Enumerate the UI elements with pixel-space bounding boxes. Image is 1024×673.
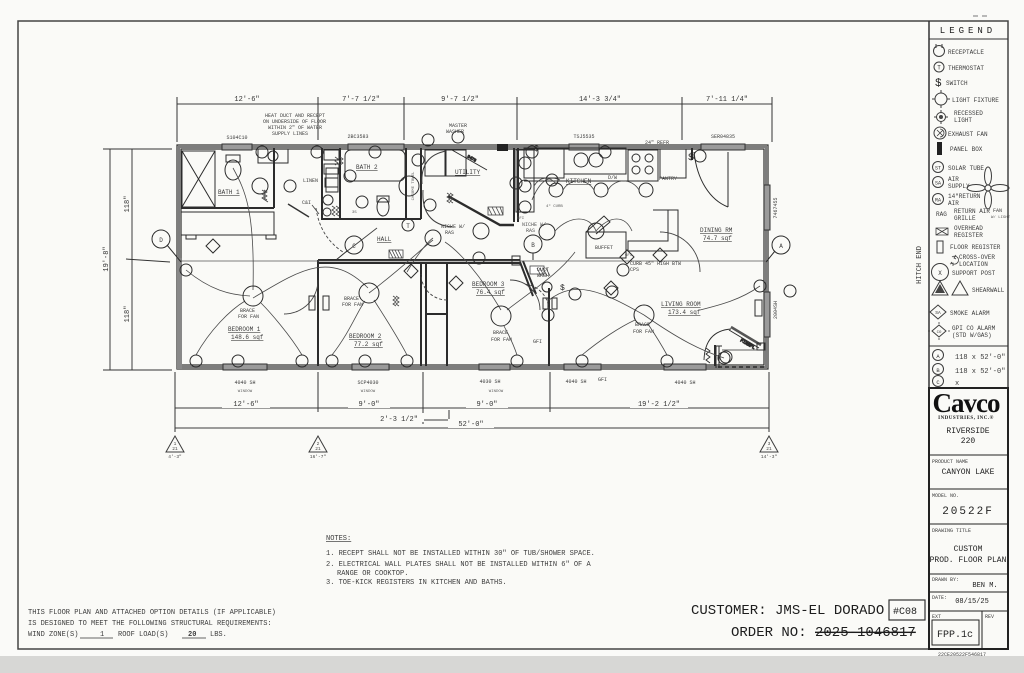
svg-text:NOTES:: NOTES: [326,535,351,543]
svg-text:RAS: RAS [526,228,535,234]
svg-text:D: D [159,237,163,244]
svg-text:173.4 sqf: 173.4 sqf [668,309,701,316]
svg-text:THERMOSTAT: THERMOSTAT [948,65,984,72]
svg-text:1. RECEPT SHALL NOT BE INSTALL: 1. RECEPT SHALL NOT BE INSTALLED WITHIN … [326,550,595,558]
svg-text:118": 118" [124,306,132,323]
svg-text:SCP4030: SCP4030 [357,380,378,386]
svg-text:HALL: HALL [377,236,392,243]
svg-text:GFI: GFI [533,339,542,345]
svg-text:UTILITY: UTILITY [455,169,481,176]
svg-text:20522F: 20522F [942,506,994,518]
svg-text:118 x 52'-0": 118 x 52'-0" [955,354,1005,362]
svg-text:DINING RM: DINING RM [700,227,733,234]
svg-text:118 x 52'-0": 118 x 52'-0" [955,368,1005,376]
svg-text:9'-0": 9'-0" [476,401,497,409]
svg-text:FLOOR REGISTER: FLOOR REGISTER [950,244,1001,251]
svg-text:T: T [406,223,410,230]
svg-text:AIR: AIR [948,176,959,183]
svg-text:BEDROOM 1: BEDROOM 1 [228,326,261,333]
svg-text:B: B [531,242,535,249]
svg-text:HITCH END: HITCH END [916,246,924,284]
svg-text:7467455: 7467455 [773,197,779,218]
svg-text:$: $ [560,284,565,293]
svg-text:118": 118" [124,196,132,213]
svg-text:MODEL NO.: MODEL NO. [932,493,959,499]
svg-text:RETURN AIR: RETURN AIR [954,208,990,215]
svg-text:DATE:: DATE: [932,595,947,601]
svg-text:ORDER NO:: ORDER NO: [731,625,807,641]
svg-text:21: 21 [172,446,178,452]
svg-text:BATH 2: BATH 2 [356,164,378,171]
svg-text:GFI: GFI [517,217,524,221]
svg-text:SA: SA [935,181,941,187]
svg-text:220: 220 [961,437,976,446]
svg-text:CANYON LAKE: CANYON LAKE [942,468,995,477]
svg-text:X: X [938,270,942,277]
svg-text:PRODUCT NAME: PRODUCT NAME [932,459,968,465]
svg-text:PANEL BOX: PANEL BOX [950,146,983,153]
svg-text:GRILLE: GRILLE [954,215,976,222]
svg-text:$: $ [688,152,694,164]
svg-text:PROD. FLOOR PLAN: PROD. FLOOR PLAN [930,556,1007,565]
svg-text:LOCATION: LOCATION [959,261,988,268]
svg-text:SOLAR TUBE: SOLAR TUBE [948,165,984,172]
svg-text:FOR FAN: FOR FAN [633,329,654,335]
svg-text:CROSS-OVER: CROSS-OVER [959,254,995,261]
svg-text:2004SH: 2004SH [773,301,779,319]
svg-text:24" REFR: 24" REFR [645,140,669,146]
svg-text:SUPPORT POST: SUPPORT POST [952,270,996,277]
svg-text:SWITCH: SWITCH [946,80,968,87]
svg-text:12'-6": 12'-6" [234,96,259,104]
svg-text:T: T [937,65,941,72]
svg-text:21: 21 [315,446,321,452]
svg-text:WASHER: WASHER [446,129,464,135]
svg-text:$: $ [935,78,942,90]
svg-text:WINDOW: WINDOW [361,390,376,394]
svg-text:19'-2 1/2": 19'-2 1/2" [638,401,680,409]
svg-text:4" CURB: 4" CURB [546,204,563,209]
svg-text:PANTRY: PANTRY [659,176,677,182]
svg-text:(STD W/GAS): (STD W/GAS) [952,332,992,339]
svg-text:EXT: EXT [932,614,941,620]
svg-text:FOR FAN: FOR FAN [238,314,259,320]
svg-text:BATH 1: BATH 1 [218,189,240,196]
svg-text:LEGEND: LEGEND [940,26,996,36]
svg-text:C: C [352,243,356,250]
svg-text:FAN: FAN [993,208,1002,214]
svg-text:DRAWING TITLE: DRAWING TITLE [932,528,971,534]
svg-text:BEDROOM 2: BEDROOM 2 [349,333,382,340]
svg-text:LINEN: LINEN [303,178,318,184]
svg-text:BRACE: BRACE [493,330,508,336]
svg-text:WASH: WASH [537,273,549,279]
svg-text:08/15/25: 08/15/25 [955,598,989,606]
svg-text:76.4 sqf: 76.4 sqf [476,289,505,296]
svg-text:SHEARWALL: SHEARWALL [972,287,1005,294]
svg-text:2'-3 1/2": 2'-3 1/2" [380,416,418,424]
svg-text:19'-8": 19'-8" [103,246,111,271]
svg-text:WINDOW: WINDOW [238,390,253,394]
svg-text:C&I: C&I [302,200,311,206]
svg-text:#C08: #C08 [893,607,917,618]
svg-text:77.2 sqf: 77.2 sqf [354,341,383,348]
svg-text:LIGHT FIXTURE: LIGHT FIXTURE [952,97,999,104]
svg-text:2BC3583: 2BC3583 [347,134,368,140]
svg-text:A: A [779,243,783,250]
svg-text:CO: CO [937,331,942,335]
svg-text:INDUSTRIES, INC.®: INDUSTRIES, INC.® [938,415,994,421]
svg-text:IS DESIGNED TO MEET THE FOLLOW: IS DESIGNED TO MEET THE FOLLOWING STRUCT… [28,620,272,628]
svg-text:9'-0": 9'-0" [358,401,379,409]
svg-text:GFI: GFI [598,377,607,383]
svg-text:4040 SH: 4040 SH [565,379,586,385]
svg-text:3. TOE-KICK REGISTERS IN KITCH: 3. TOE-KICK REGISTERS IN KITCHEN AND BAT… [326,579,507,587]
svg-text:KITCHEN: KITCHEN [566,178,592,185]
svg-text:FPP.1c: FPP.1c [937,630,973,641]
svg-text:14'-3": 14'-3" [761,454,778,460]
svg-text:RAS: RAS [445,230,454,236]
svg-text:D/W: D/W [608,175,617,181]
svg-text:REGISTER: REGISTER [954,232,983,239]
svg-text:74.7 sqf: 74.7 sqf [703,235,732,242]
svg-text:AIR: AIR [948,200,959,207]
svg-text:BRACE: BRACE [635,322,650,328]
svg-text:14'-3 3/4": 14'-3 3/4" [579,96,621,104]
svg-text:SUPPLY: SUPPLY [948,183,970,190]
svg-text:35: 35 [352,211,357,215]
svg-text:TSJ5535: TSJ5535 [573,134,594,140]
svg-text:MASTER: MASTER [449,123,467,129]
svg-text:FOR FAN: FOR FAN [491,337,512,343]
svg-text:RANGE OR COOKTOP.: RANGE OR COOKTOP. [337,570,408,578]
svg-text:FOR FAN: FOR FAN [342,302,363,308]
svg-text:LBS.: LBS. [210,631,227,639]
svg-text:LIVING ROOM: LIVING ROOM [661,301,701,308]
svg-text:7'-7 1/2": 7'-7 1/2" [342,96,380,104]
svg-text:Cavco: Cavco [933,388,1000,418]
svg-text:CUSTOMER: JMS-EL DORADO: CUSTOMER: JMS-EL DORADO [691,603,884,619]
svg-text:THIS FLOOR PLAN AND ATTACHED O: THIS FLOOR PLAN AND ATTACHED OPTION DETA… [28,609,276,617]
svg-text:12'-6": 12'-6" [233,401,258,409]
svg-text:LIGHT: LIGHT [954,117,972,124]
svg-text:RECEPTACLE: RECEPTACLE [948,49,984,56]
svg-text:RA: RA [935,198,941,204]
svg-text:2. ELECTRICAL WALL PLATES SHAL: 2. ELECTRICAL WALL PLATES SHALL NOT BE I… [326,561,591,569]
svg-text:16'-7": 16'-7" [310,454,327,460]
svg-text:GPI CO ALARM: GPI CO ALARM [952,325,996,332]
svg-text:4040 SH: 4040 SH [234,380,255,386]
svg-text:BEN M.: BEN M. [972,582,997,590]
svg-text:2025-1046817: 2025-1046817 [815,625,916,641]
svg-text:CUSTOM: CUSTOM [954,545,983,554]
svg-text:4040 SH: 4040 SH [674,380,695,386]
svg-text:REV: REV [985,614,994,620]
svg-text:SUPPLY LINES: SUPPLY LINES [272,131,308,137]
svg-text:DRAWN BY:: DRAWN BY: [932,577,959,583]
svg-text:WIND ZONE(S): WIND ZONE(S) [28,631,78,639]
svg-text:CPS: CPS [630,267,639,273]
svg-text:RIVERSIDE: RIVERSIDE [946,427,989,436]
svg-text:CHROME TOWEL: CHROME TOWEL [412,171,416,200]
svg-text:ROOF LOAD(S): ROOF LOAD(S) [118,631,168,639]
svg-text:SMOKE ALARM: SMOKE ALARM [950,310,990,317]
svg-text:7'-11 1/4": 7'-11 1/4" [706,96,748,104]
svg-text:W/ LIGHT: W/ LIGHT [991,215,1011,220]
svg-text:$: $ [534,145,539,154]
svg-text:x: x [955,380,959,388]
svg-text:52'-0": 52'-0" [458,421,483,429]
svg-text:WINDOW: WINDOW [489,390,504,394]
svg-text:4030 SH: 4030 SH [479,379,500,385]
svg-text:RECESSED: RECESSED [954,110,983,117]
svg-text:OVERHEAD: OVERHEAD [954,225,983,232]
svg-text:ST: ST [935,166,941,172]
svg-text:BUFFET: BUFFET [595,245,613,251]
svg-text:148.6 sqf: 148.6 sqf [231,334,264,341]
svg-text:21: 21 [766,446,772,452]
svg-text:S104C10: S104C10 [226,135,247,141]
svg-text:EXHAUST FAN: EXHAUST FAN [948,131,988,138]
svg-text:4'-3": 4'-3" [168,454,182,460]
svg-text:9'-7 1/2": 9'-7 1/2" [441,96,479,104]
svg-text:22CE20522F546817: 22CE20522F546817 [938,652,986,658]
svg-text:RAG: RAG [936,211,947,218]
svg-text:14"RETURN: 14"RETURN [948,193,981,200]
svg-text:BEDROOM 3: BEDROOM 3 [472,281,505,288]
svg-text:SER04835: SER04835 [711,134,735,140]
svg-text:SA: SA [935,310,941,316]
